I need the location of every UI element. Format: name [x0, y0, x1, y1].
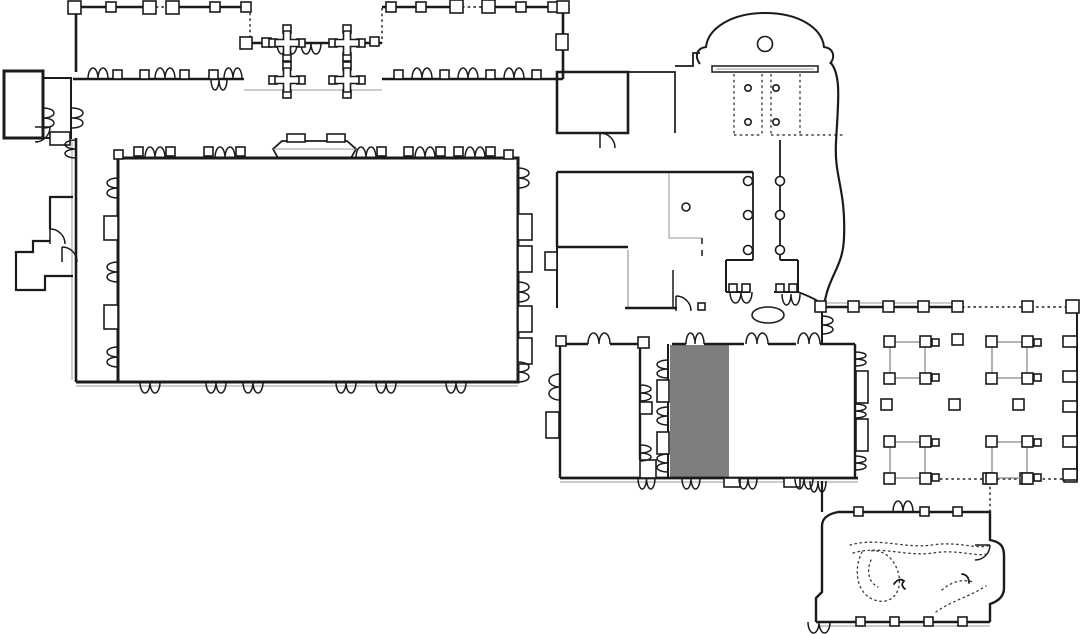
pilaster [236, 147, 245, 156]
double-door-swing-icon [140, 382, 160, 393]
double-door-swing-icon [211, 79, 227, 90]
double-door-swing-icon [356, 147, 376, 158]
wall-niche [327, 134, 345, 142]
double-door-swing-icon [739, 478, 757, 489]
double-door-swing-icon [336, 382, 356, 393]
room-crossing-hall[interactable] [557, 172, 753, 308]
pilaster [134, 147, 143, 156]
round-column-icon [776, 246, 785, 255]
room-garden[interactable] [816, 512, 1007, 622]
double-door-swing-icon [588, 333, 610, 344]
floor-plan-drawing [0, 0, 1080, 634]
room-vestibule[interactable] [726, 260, 798, 292]
double-door-swing-icon [215, 147, 235, 158]
double-door-swing-icon [808, 622, 830, 633]
wall-niche [724, 478, 740, 487]
room-north-range-west[interactable] [73, 7, 250, 79]
double-door-swing-icon [376, 382, 396, 393]
pilaster [166, 147, 175, 156]
double-door-swing-icon [72, 108, 83, 128]
room-cloister-court[interactable] [855, 307, 1077, 479]
room-south-terrace[interactable] [822, 481, 990, 512]
room-great-hall[interactable] [118, 158, 518, 382]
double-door-swing-icon [206, 382, 226, 393]
double-door-swing-icon [446, 382, 466, 393]
double-door-swing-icon [798, 333, 820, 344]
room-west-annex[interactable] [3, 70, 72, 138]
double-door-swing-icon [145, 147, 165, 158]
pilaster [377, 147, 386, 156]
room-west-aisle[interactable] [76, 138, 118, 382]
wall-niche [546, 412, 559, 438]
pilaster [404, 147, 413, 156]
wall-niche [287, 134, 305, 142]
double-door-swing-icon [243, 382, 263, 393]
round-column-icon [776, 211, 785, 220]
round-column-icon [776, 177, 785, 186]
double-door-swing-icon [465, 147, 485, 158]
double-door-swing-icon [638, 478, 655, 489]
room-south-corridor[interactable] [640, 344, 672, 478]
room-narthex-center[interactable] [244, 43, 382, 90]
pilaster [504, 150, 513, 159]
pilaster [204, 147, 213, 156]
double-door-swing-icon [782, 294, 800, 305]
room-north-rooms[interactable] [557, 72, 675, 133]
door-swing-icon [600, 133, 615, 148]
room-apse-rotunda[interactable] [704, 13, 826, 64]
room-hit-areas [3, 7, 1077, 622]
pilaster [815, 301, 826, 312]
double-door-swing-icon [686, 333, 704, 344]
double-door-swing-icon [682, 478, 700, 489]
room-south-hall-east[interactable] [729, 344, 855, 478]
room-east-corridor[interactable] [518, 158, 557, 382]
pilaster [486, 147, 495, 156]
double-door-swing-icon [746, 333, 768, 344]
wall-niche [784, 478, 800, 487]
room-northwest-annex[interactable] [15, 197, 73, 290]
room-south-hall-west-bay-highlighted[interactable] [670, 345, 729, 477]
room-north-terrace[interactable] [712, 72, 836, 172]
room-north-range-east[interactable] [382, 7, 563, 79]
double-door-swing-icon [415, 147, 435, 158]
pilaster [454, 147, 463, 156]
oval-table-icon [752, 307, 784, 323]
double-door-swing-icon [822, 316, 833, 334]
pilaster [436, 147, 445, 156]
floor-plan-page [0, 0, 1080, 634]
room-south-hall-west[interactable] [560, 344, 640, 478]
